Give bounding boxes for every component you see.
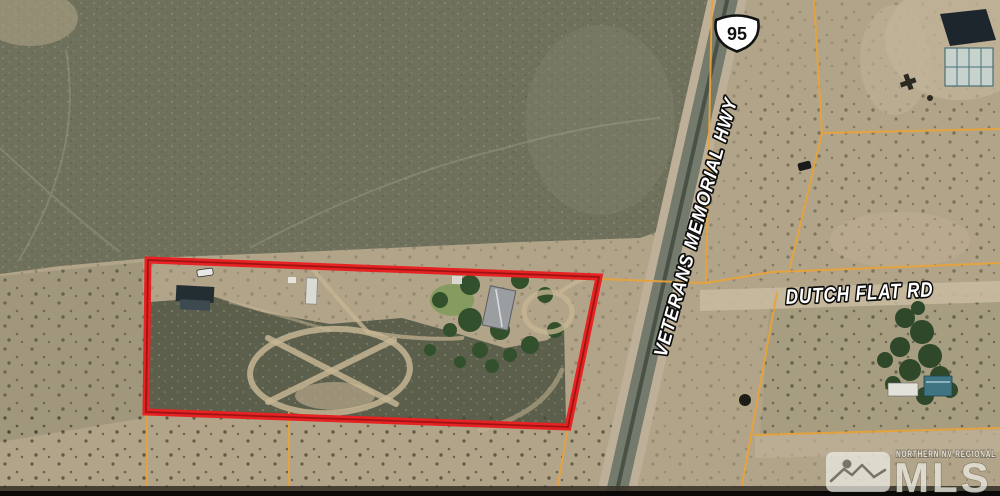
- white-shed: [452, 276, 462, 284]
- dark-bush: [739, 394, 751, 406]
- white-trailer: [306, 278, 318, 304]
- mls-logo-mountain-sun-icon: [826, 452, 890, 492]
- dark-panel-array: [940, 9, 996, 46]
- mls-watermark: NORTHERN NV REGIONAL MLS: [826, 449, 996, 496]
- map-canvas: VETERANS MEMORIAL HWY DUTCH FLAT RD 95 N…: [0, 0, 1000, 496]
- teal-roof-building: [924, 376, 952, 396]
- white-shed-small: [288, 277, 296, 283]
- shield-number: 95: [727, 24, 747, 44]
- watermark-brand-text: MLS: [894, 454, 992, 496]
- white-building: [888, 383, 918, 396]
- aerial-map: VETERANS MEMORIAL HWY DUTCH FLAT RD 95 N…: [0, 0, 1000, 496]
